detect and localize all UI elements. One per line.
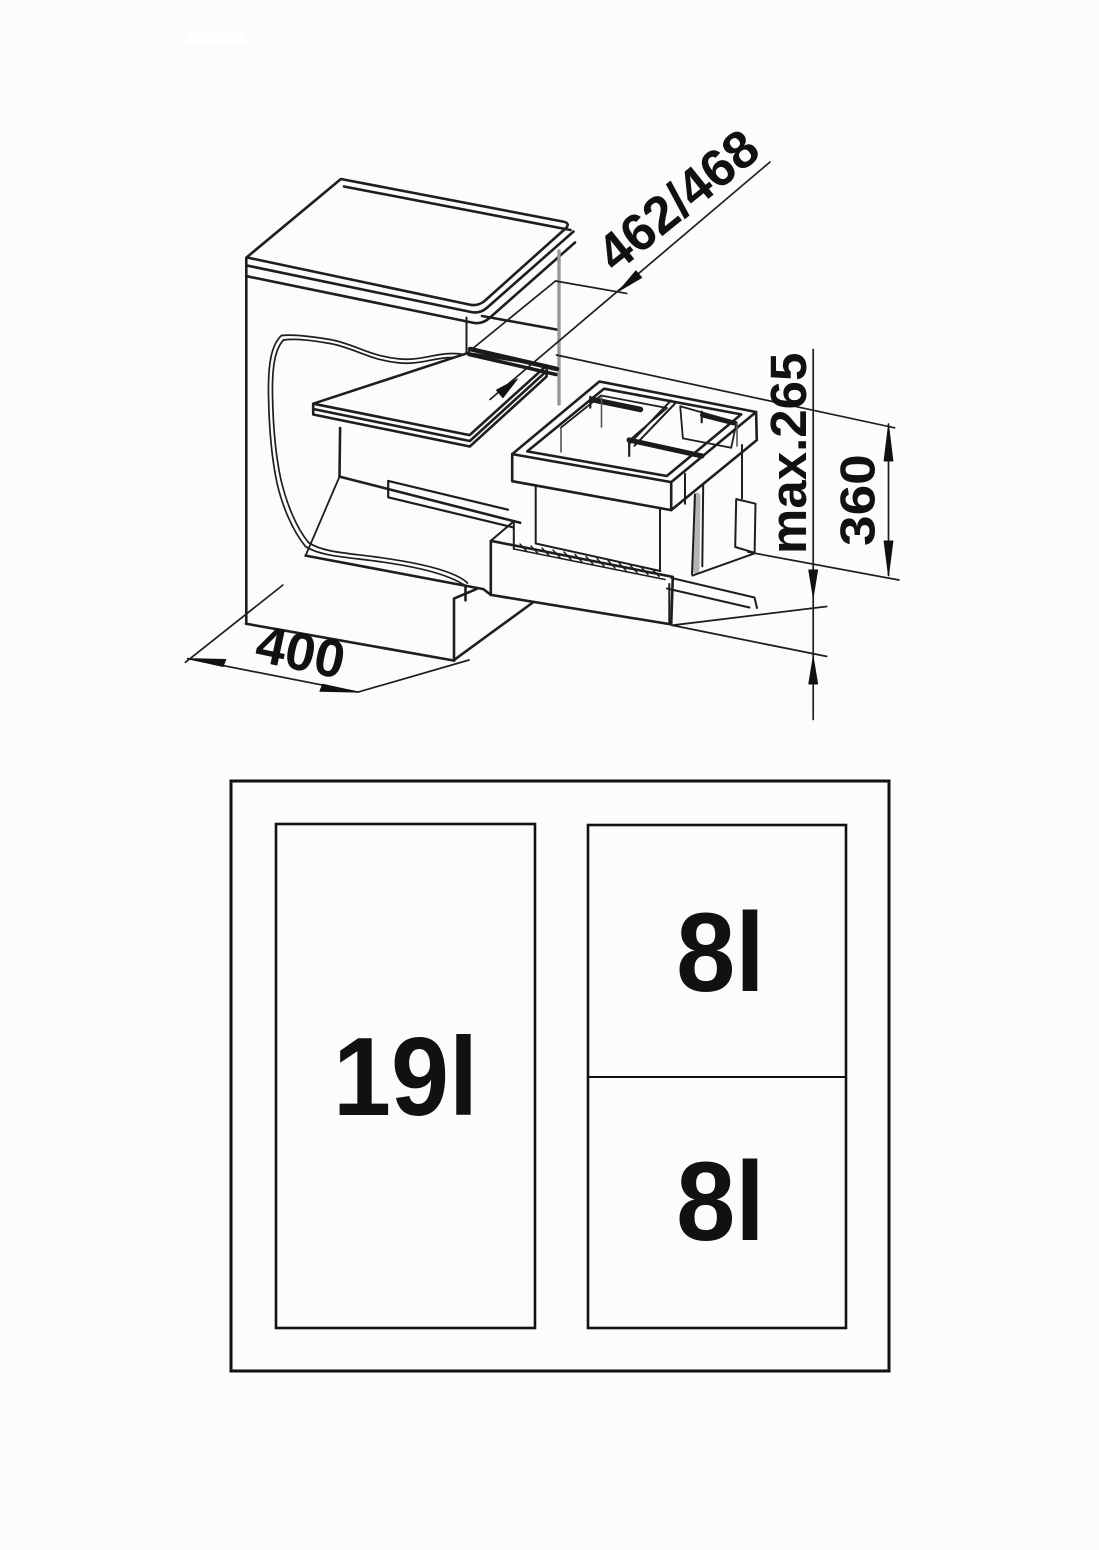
svg-text:400: 400 — [251, 615, 351, 691]
svg-text:max.265: max.265 — [760, 353, 817, 554]
svg-text:8l: 8l — [676, 1140, 765, 1265]
svg-text:8l: 8l — [676, 891, 765, 1016]
svg-text:19l: 19l — [333, 1014, 478, 1139]
svg-text:360: 360 — [831, 454, 886, 546]
svg-text:462/468: 462/468 — [586, 118, 771, 283]
